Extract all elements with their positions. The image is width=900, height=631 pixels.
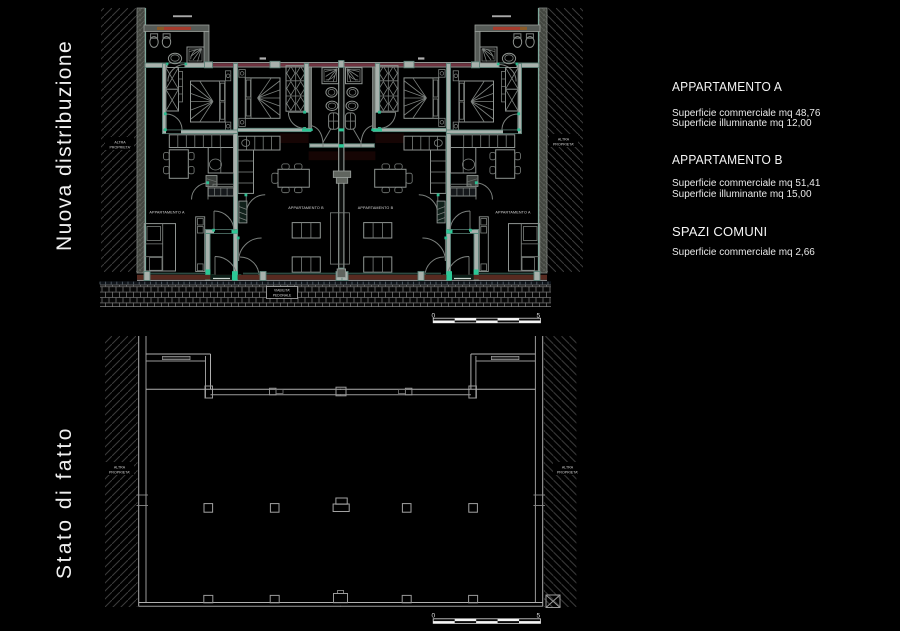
svg-text:ALTRA: ALTRA [558,138,570,142]
svg-text:PEDONALE: PEDONALE [273,293,292,297]
svg-text:PROPRIETA’: PROPRIETA’ [109,145,130,149]
svg-text:ALTRA: ALTRA [114,141,126,145]
svg-text:ALTRA: ALTRA [562,466,574,470]
svg-text:ALTRA: ALTRA [114,466,126,470]
svg-text:PROPRIETA’: PROPRIETA’ [109,470,130,474]
svg-text:APPARTAMENTO A: APPARTAMENTO A [495,211,531,215]
svg-text:PROPRIETA’: PROPRIETA’ [553,142,574,146]
svg-text:VIABILITA’: VIABILITA’ [274,289,290,293]
svg-text:APPARTAMENTO B: APPARTAMENTO B [358,206,394,210]
svg-text:PROPRIETA’: PROPRIETA’ [557,470,578,474]
svg-text:APPARTAMENTO A: APPARTAMENTO A [149,211,185,215]
svg-text:APPARTAMENTO B: APPARTAMENTO B [288,206,324,210]
